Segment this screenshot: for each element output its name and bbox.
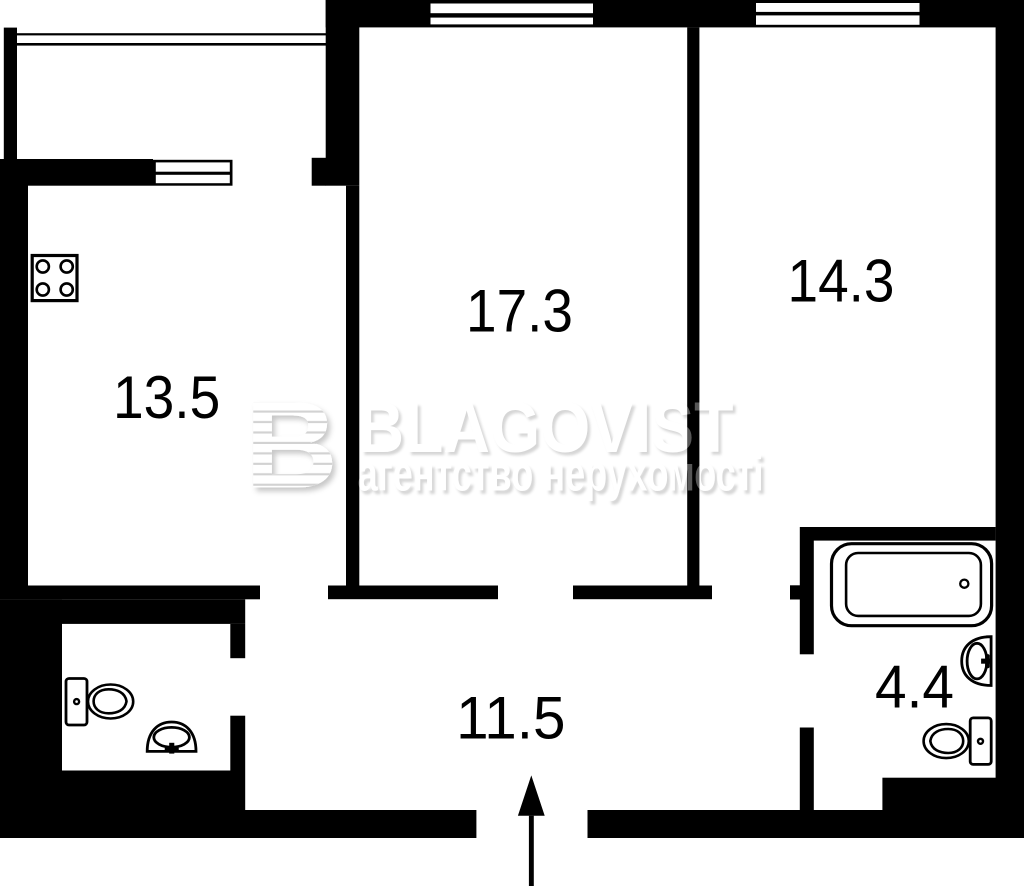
svg-text:17.3: 17.3 <box>466 278 573 345</box>
svg-text:4.4: 4.4 <box>875 654 954 721</box>
svg-text:13.5: 13.5 <box>113 364 220 431</box>
svg-text:11.5: 11.5 <box>456 685 565 752</box>
svg-text:агентство нерухомості: агентство нерухомості <box>358 446 764 502</box>
svg-text:14.3: 14.3 <box>788 248 895 315</box>
svg-text:B: B <box>245 377 339 515</box>
